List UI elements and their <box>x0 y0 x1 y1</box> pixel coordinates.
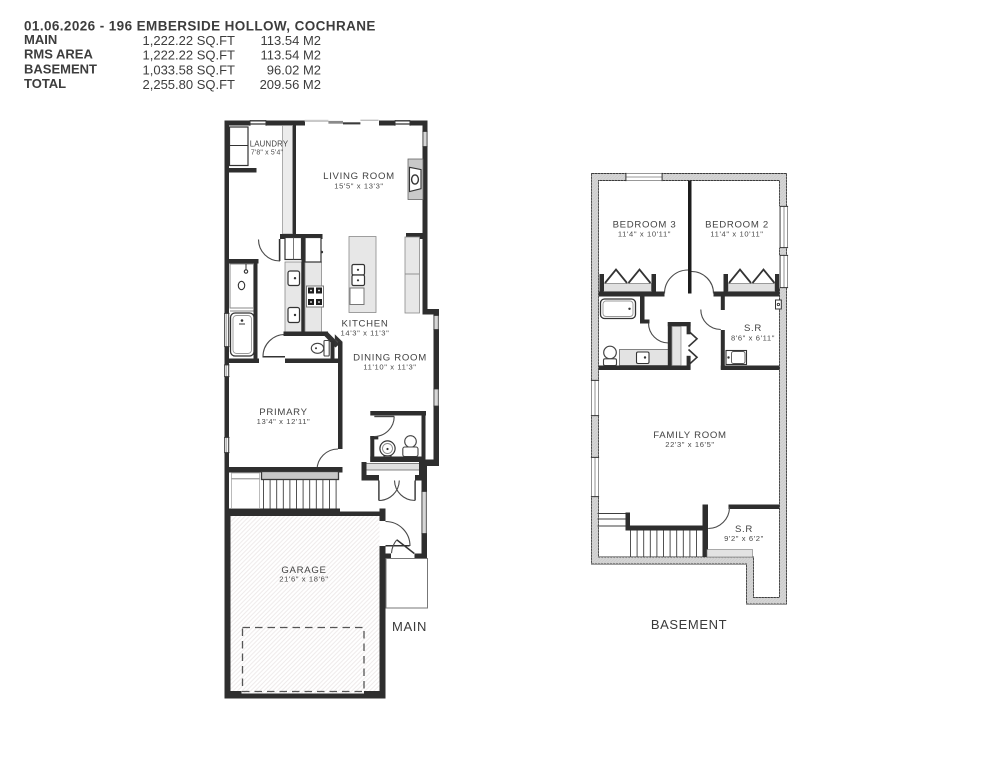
svg-text:1,033.58 SQ.FT: 1,033.58 SQ.FT <box>143 62 236 77</box>
svg-text:113.54 M2: 113.54 M2 <box>261 33 321 48</box>
svg-text:01.06.2026 - 196 EMBERSIDE HOL: 01.06.2026 - 196 EMBERSIDE HOLLOW, COCHR… <box>24 19 376 34</box>
svg-text:15'5" x 13'3": 15'5" x 13'3" <box>334 182 383 191</box>
svg-text:96.02 M2: 96.02 M2 <box>267 62 321 77</box>
svg-text:14'3" x 11'3": 14'3" x 11'3" <box>341 329 390 338</box>
svg-text:1,222.22 SQ.FT: 1,222.22 SQ.FT <box>143 48 236 63</box>
svg-text:113.54 M2: 113.54 M2 <box>261 48 321 63</box>
svg-text:RMS AREA: RMS AREA <box>24 47 93 62</box>
svg-text:7'8" x 5'4": 7'8" x 5'4" <box>251 150 284 157</box>
svg-text:LIVING ROOM: LIVING ROOM <box>323 171 395 182</box>
svg-text:2,255.80 SQ.FT: 2,255.80 SQ.FT <box>143 77 236 92</box>
svg-text:S.R: S.R <box>744 323 762 334</box>
svg-text:8'6" x 6'11": 8'6" x 6'11" <box>731 334 775 343</box>
svg-text:LAUNDRY: LAUNDRY <box>250 140 289 149</box>
svg-text:11'4" x 10'11": 11'4" x 10'11" <box>618 230 671 239</box>
svg-text:TOTAL: TOTAL <box>24 76 66 91</box>
svg-text:BASEMENT: BASEMENT <box>24 61 97 76</box>
svg-text:13'4" x 12'11": 13'4" x 12'11" <box>257 417 311 426</box>
svg-text:9'2" x 6'2": 9'2" x 6'2" <box>724 534 764 543</box>
svg-text:BASEMENT: BASEMENT <box>651 617 727 632</box>
svg-text:MAIN: MAIN <box>392 619 427 634</box>
svg-text:21'6" x 18'6": 21'6" x 18'6" <box>279 575 328 584</box>
svg-text:11'10" x 11'3": 11'10" x 11'3" <box>363 363 416 372</box>
svg-text:11'4" x 10'11": 11'4" x 10'11" <box>710 230 763 239</box>
svg-text:1,222.22 SQ.FT: 1,222.22 SQ.FT <box>143 33 236 48</box>
svg-text:MAIN: MAIN <box>24 32 57 47</box>
svg-text:22'3" x 16'5": 22'3" x 16'5" <box>665 440 714 449</box>
svg-text:209.56 M2: 209.56 M2 <box>260 77 321 92</box>
